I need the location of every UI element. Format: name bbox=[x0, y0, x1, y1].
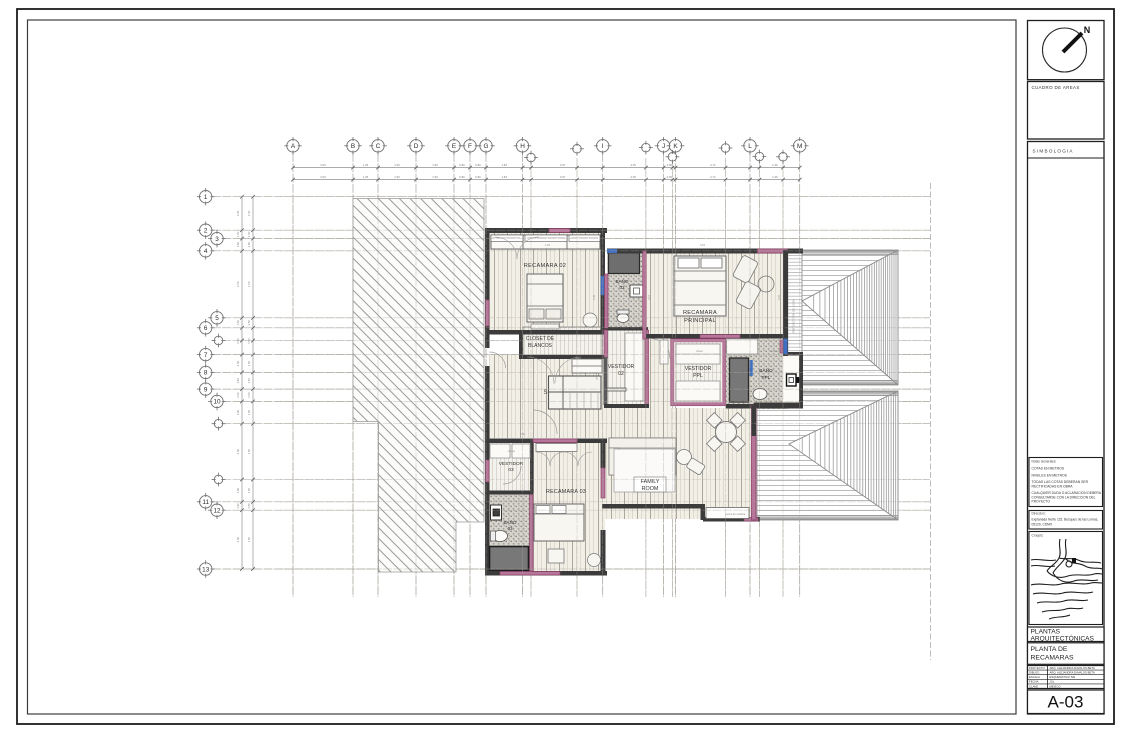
svg-text:3.72: 3.72 bbox=[710, 163, 716, 167]
svg-text:N: N bbox=[1084, 25, 1091, 35]
svg-text:3.15: 3.15 bbox=[647, 294, 651, 300]
svg-text:3.00: 3.00 bbox=[320, 175, 326, 179]
svg-text:MEXICO: MEXICO bbox=[1050, 684, 1062, 688]
svg-text:1.20: 1.20 bbox=[545, 243, 551, 247]
svg-text:1.83: 1.83 bbox=[501, 175, 507, 179]
svg-text:1.50: 1.50 bbox=[236, 360, 240, 366]
svg-text:Notas Generales:: Notas Generales: bbox=[1032, 460, 1057, 464]
svg-text:0.80: 0.80 bbox=[475, 175, 481, 179]
svg-text:TODAS LAS COTAS DEBERAN SER: TODAS LAS COTAS DEBERAN SER bbox=[1032, 480, 1089, 484]
svg-text:1.50: 1.50 bbox=[236, 409, 240, 415]
svg-text:DIBUJO: DIBUJO bbox=[1029, 671, 1040, 675]
svg-text:C: C bbox=[376, 143, 381, 150]
svg-text:4.05: 4.05 bbox=[630, 163, 636, 167]
svg-text:1.25: 1.25 bbox=[363, 175, 369, 179]
svg-text:G: G bbox=[484, 143, 489, 150]
svg-text:PROYECTO: PROYECTO bbox=[1032, 500, 1051, 504]
svg-text:FECHA: FECHA bbox=[1029, 680, 1039, 684]
svg-text:BAÑO: BAÑO bbox=[615, 278, 628, 284]
svg-text:1.50: 1.50 bbox=[247, 210, 251, 216]
svg-text:1: 1 bbox=[204, 194, 208, 201]
svg-text:PRINCIPAL: PRINCIPAL bbox=[684, 318, 716, 324]
svg-text:1.50: 1.50 bbox=[247, 231, 251, 237]
svg-text:PROYECTO: PROYECTO bbox=[1029, 666, 1045, 670]
svg-text:1.50: 1.50 bbox=[236, 378, 240, 384]
svg-text:H: H bbox=[520, 143, 525, 150]
svg-text:I: I bbox=[602, 143, 604, 150]
svg-text:ESQUEMATICO S/E: ESQUEMATICO S/E bbox=[1050, 675, 1076, 679]
svg-text:12: 12 bbox=[213, 508, 221, 515]
svg-text:3.72: 3.72 bbox=[710, 175, 716, 179]
svg-text:3.00: 3.00 bbox=[320, 163, 326, 167]
svg-text:6: 6 bbox=[204, 325, 208, 332]
svg-text:02: 02 bbox=[618, 371, 624, 377]
svg-text:1.50: 1.50 bbox=[236, 503, 240, 509]
svg-text:S I M B O L O G I A: S I M B O L O G I A bbox=[1033, 149, 1074, 154]
svg-text:Explanada Norte 115, Bosques d: Explanada Norte 115, Bosques de las Loma… bbox=[1032, 518, 1099, 522]
svg-text:1.50: 1.50 bbox=[236, 210, 240, 216]
svg-text:2: 2 bbox=[204, 228, 208, 235]
svg-text:05120, CDMX: 05120, CDMX bbox=[1032, 523, 1054, 527]
svg-text:lavabo dob.: lavabo dob. bbox=[770, 349, 784, 353]
svg-text:RECAMARA 03: RECAMARA 03 bbox=[546, 489, 586, 495]
svg-text:1.50: 1.50 bbox=[247, 487, 251, 493]
svg-text:5: 5 bbox=[215, 315, 219, 322]
svg-text:FAMILY: FAMILY bbox=[641, 479, 660, 485]
svg-text:ESCALA: ESCALA bbox=[1029, 675, 1040, 679]
svg-text:1.50: 1.50 bbox=[236, 281, 240, 287]
svg-text:D: D bbox=[414, 143, 419, 150]
svg-text:1.50: 1.50 bbox=[236, 231, 240, 237]
svg-text:M: M bbox=[797, 143, 802, 150]
svg-text:A-03: A-03 bbox=[1048, 693, 1084, 712]
svg-text:J: J bbox=[662, 143, 665, 150]
svg-text:1.90: 1.90 bbox=[394, 163, 400, 167]
svg-text:4.05: 4.05 bbox=[630, 175, 636, 179]
svg-text:03: 03 bbox=[507, 526, 513, 531]
svg-text:1.50: 1.50 bbox=[247, 409, 251, 415]
svg-text:8: 8 bbox=[204, 370, 208, 377]
svg-text:03: 03 bbox=[508, 467, 514, 473]
svg-text:closet: closet bbox=[508, 449, 515, 453]
svg-text:1.50: 1.50 bbox=[247, 360, 251, 366]
svg-text:1.50: 1.50 bbox=[247, 338, 251, 344]
svg-text:1.50: 1.50 bbox=[247, 378, 251, 384]
svg-text:1.50: 1.50 bbox=[236, 487, 240, 493]
svg-text:CUADRO DE AREAS: CUADRO DE AREAS bbox=[1032, 85, 1080, 90]
svg-text:1.90: 1.90 bbox=[394, 175, 400, 179]
svg-text:0.80: 0.80 bbox=[459, 175, 465, 179]
svg-text:1.50: 1.50 bbox=[247, 448, 251, 454]
svg-text:1.50: 1.50 bbox=[247, 503, 251, 509]
svg-text:F: F bbox=[468, 143, 472, 150]
svg-text:13: 13 bbox=[202, 566, 210, 573]
svg-text:1.90: 1.90 bbox=[432, 175, 438, 179]
svg-text:2.49: 2.49 bbox=[772, 163, 778, 167]
svg-text:0.80: 0.80 bbox=[459, 163, 465, 167]
svg-text:1.50: 1.50 bbox=[247, 536, 251, 542]
svg-text:PPL: PPL bbox=[693, 373, 703, 379]
svg-text:CLAVE: CLAVE bbox=[1029, 684, 1038, 688]
svg-text:02: 02 bbox=[619, 285, 625, 290]
svg-text:PPL: PPL bbox=[761, 375, 770, 381]
svg-text:4.52: 4.52 bbox=[700, 243, 706, 247]
svg-text:RECAMARA: RECAMARA bbox=[683, 310, 717, 316]
svg-text:RECAMARA 02: RECAMARA 02 bbox=[524, 263, 566, 269]
svg-text:1.50: 1.50 bbox=[236, 320, 240, 326]
svg-text:3.97: 3.97 bbox=[560, 163, 566, 167]
svg-text:1.50: 1.50 bbox=[236, 338, 240, 344]
svg-text:S: S bbox=[543, 390, 547, 396]
svg-text:VESTIDOR: VESTIDOR bbox=[608, 364, 635, 370]
svg-text:1.50: 1.50 bbox=[247, 320, 251, 326]
svg-text:NIVELES EN METROS: NIVELES EN METROS bbox=[1032, 474, 1068, 478]
svg-text:CLOSET DE: CLOSET DE bbox=[526, 336, 555, 342]
svg-text:0.60: 0.60 bbox=[667, 175, 673, 179]
svg-text:2.10: 2.10 bbox=[640, 399, 646, 403]
svg-text:4.05: 4.05 bbox=[777, 294, 781, 300]
svg-text:VESTIDOR: VESTIDOR bbox=[499, 461, 524, 467]
svg-text:ARQ. ALEJANDRA DAVALOS BETA: ARQ. ALEJANDRA DAVALOS BETA bbox=[1050, 666, 1095, 670]
svg-text:L: L bbox=[748, 143, 752, 150]
svg-text:1.50: 1.50 bbox=[247, 242, 251, 248]
svg-text:RECAMARAS: RECAMARAS bbox=[1031, 655, 1075, 662]
svg-text:B: B bbox=[351, 143, 355, 150]
svg-text:BAÑO: BAÑO bbox=[759, 367, 773, 374]
svg-text:0.60: 0.60 bbox=[667, 163, 673, 167]
svg-text:0.80: 0.80 bbox=[475, 163, 481, 167]
svg-text:1.50: 1.50 bbox=[236, 448, 240, 454]
svg-text:2.49: 2.49 bbox=[772, 175, 778, 179]
svg-text:K: K bbox=[673, 143, 678, 150]
svg-text:1.90: 1.90 bbox=[432, 163, 438, 167]
svg-text:BLANCOS: BLANCOS bbox=[528, 343, 553, 349]
svg-text:10: 10 bbox=[213, 399, 221, 406]
svg-text:3: 3 bbox=[215, 236, 219, 243]
svg-text:1.50: 1.50 bbox=[247, 392, 251, 398]
svg-text:Direccion:: Direccion: bbox=[1032, 512, 1046, 516]
svg-text:1.50: 1.50 bbox=[236, 536, 240, 542]
svg-text:4: 4 bbox=[204, 248, 208, 255]
svg-text:ROOM: ROOM bbox=[642, 486, 659, 492]
svg-text:COTAS EN METROS: COTAS EN METROS bbox=[1032, 467, 1065, 471]
svg-text:1.50: 1.50 bbox=[236, 392, 240, 398]
svg-text:1.83: 1.83 bbox=[501, 163, 507, 167]
svg-text:7: 7 bbox=[204, 352, 208, 359]
svg-text:1.50: 1.50 bbox=[247, 281, 251, 287]
svg-text:11: 11 bbox=[202, 499, 209, 506]
svg-text:JUL: JUL bbox=[1050, 680, 1055, 684]
svg-text:Croquis:: Croquis: bbox=[1032, 534, 1044, 538]
svg-text:closet: closet bbox=[696, 349, 703, 353]
svg-text:3.97: 3.97 bbox=[560, 175, 566, 179]
svg-text:banca de madera: banca de madera bbox=[725, 512, 746, 516]
svg-text:1.50: 1.50 bbox=[236, 242, 240, 248]
svg-text:A: A bbox=[291, 143, 296, 150]
svg-text:9: 9 bbox=[204, 386, 208, 393]
svg-text:ARQ. ALEJANDRA DAVALOS BETA: ARQ. ALEJANDRA DAVALOS BETA bbox=[1050, 671, 1095, 675]
svg-text:BAÑO: BAÑO bbox=[503, 519, 516, 525]
svg-text:ARQUITECTÓNICAS: ARQUITECTÓNICAS bbox=[1031, 633, 1095, 642]
svg-text:VESTIDOR: VESTIDOR bbox=[685, 366, 712, 372]
svg-text:2.49: 2.49 bbox=[592, 294, 596, 300]
svg-text:1.25: 1.25 bbox=[363, 163, 369, 167]
svg-text:PLANTA DE: PLANTA DE bbox=[1031, 646, 1068, 653]
svg-text:RECTIFICADAS EN OBRA: RECTIFICADAS EN OBRA bbox=[1032, 485, 1074, 489]
svg-text:E: E bbox=[452, 143, 456, 150]
